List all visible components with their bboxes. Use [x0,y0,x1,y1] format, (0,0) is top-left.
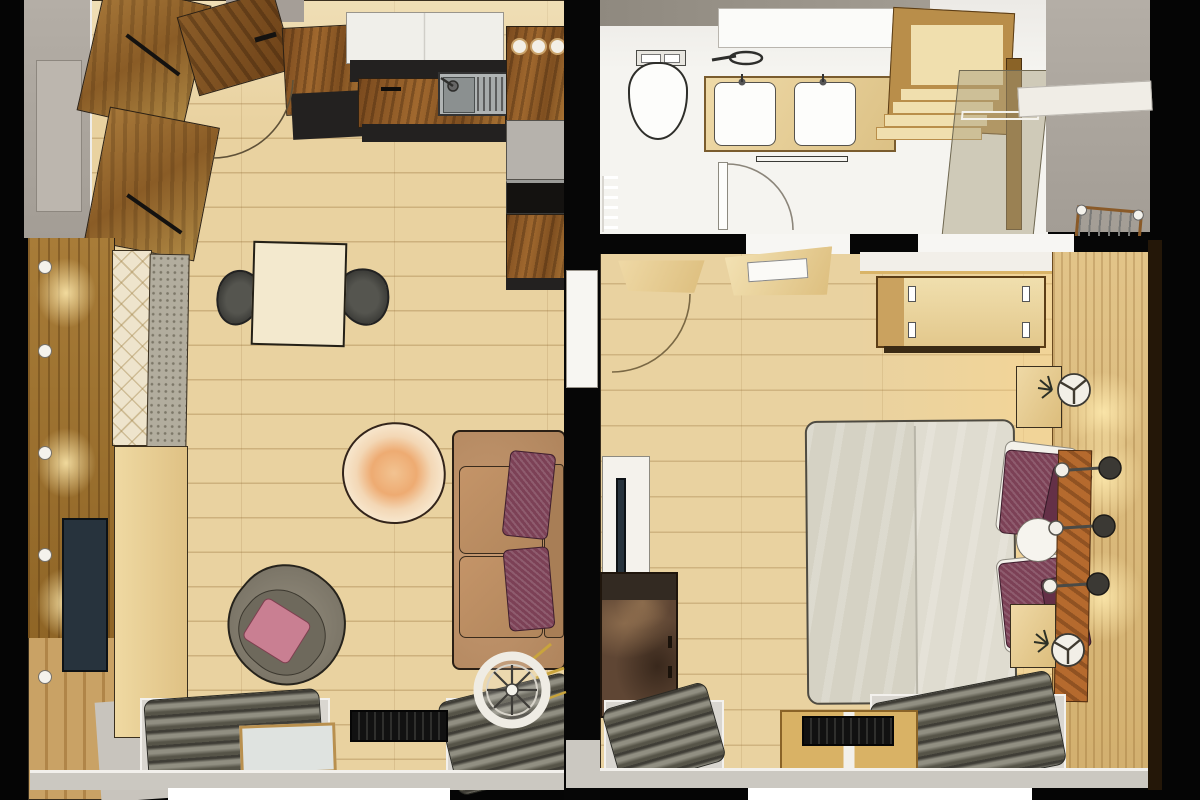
balcony-opening [748,788,1032,800]
dresser-handle [1022,286,1030,302]
bed-center-cushion [1016,518,1060,562]
bedroom [0,0,1200,800]
chest-handle [668,666,672,678]
chest-handle [668,636,672,648]
balcony-opening [168,788,450,800]
wall-glow [1063,372,1143,452]
nightstand [1016,366,1062,428]
doormat [802,716,894,746]
dresser-chest [876,276,1046,348]
floor-plan-scene [0,0,1200,800]
dresser-handle [1022,322,1030,338]
dresser-side [878,278,904,346]
bed-headboard [1054,450,1092,703]
sill-tray [747,258,808,282]
dresser-handle [908,286,916,302]
bedroom-tv [616,478,626,574]
duvet-fold [914,426,918,698]
panel-wall-edge [1148,240,1162,790]
terrace-sill [600,768,1148,788]
chest-top-face [602,574,676,600]
dresser-shadow [884,346,1040,353]
nightstand [1010,604,1056,668]
dresser-handle [908,322,916,338]
bed-duvet [805,419,1017,705]
window [918,234,1074,254]
